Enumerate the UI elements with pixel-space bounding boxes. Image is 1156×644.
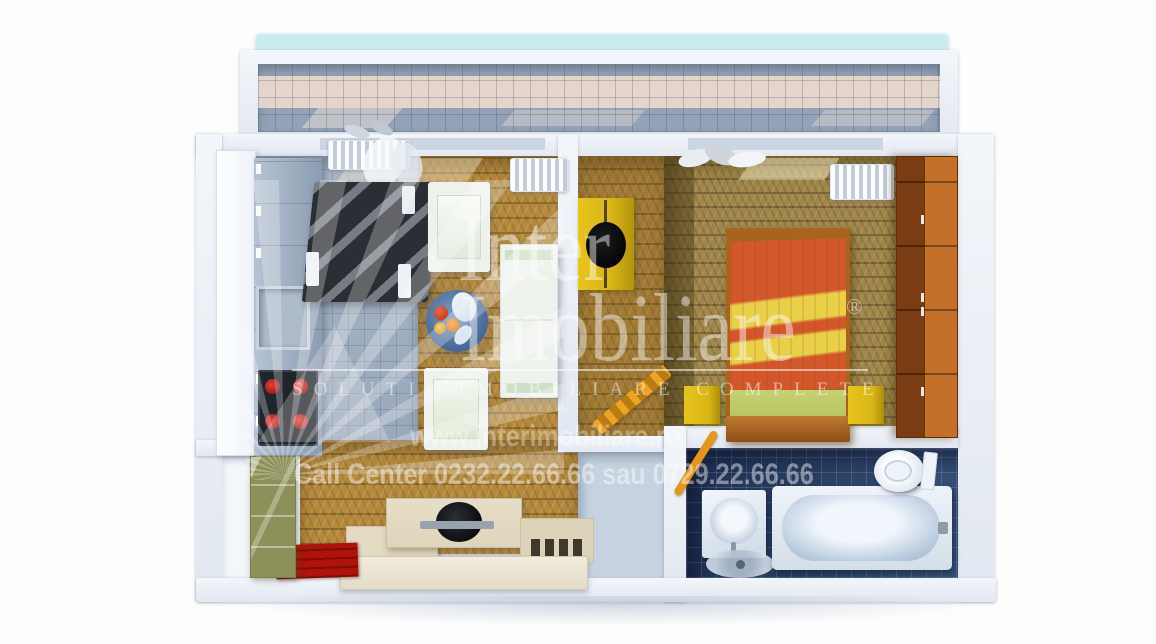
bath-sink <box>702 490 766 558</box>
watermark-brand-imobiliare: Imobiliare <box>460 280 796 376</box>
floor-drain-center <box>736 560 745 569</box>
wardrobe-handle <box>921 387 924 396</box>
balcony-tile-grid <box>258 64 940 132</box>
plan-ground-shadow <box>240 596 980 626</box>
bathtub-basin <box>782 495 940 561</box>
bath-sink-bowl <box>710 498 758 544</box>
bedroom-radiator <box>830 164 894 200</box>
watermark-divider <box>292 369 868 371</box>
floor-drain <box>706 550 774 578</box>
wall-right <box>958 134 994 600</box>
bathtub-tap <box>938 522 948 534</box>
bed-footboard <box>726 416 850 442</box>
bathtub <box>772 486 952 570</box>
wardrobe-handle <box>921 215 924 224</box>
tv-unit-skirt <box>340 556 588 590</box>
wardrobe <box>896 156 958 438</box>
toilet-bowl <box>874 450 924 492</box>
floorplan-render: Inter Imobiliare ® SOLUTII IMOBILIARE CO… <box>0 0 1156 644</box>
watermark-registered-icon: ® <box>846 296 863 318</box>
balcony-floor <box>258 64 940 132</box>
watermark-website: www.interimobiliare.ro <box>410 420 681 454</box>
watermark-call-center: Call Center 0232.22.66.66 sau 0729.22.66… <box>294 458 814 492</box>
watermark-tagline: SOLUTII IMOBILIARE COMPLETE <box>292 380 885 399</box>
wardrobe-handle <box>921 307 924 316</box>
wardrobe-handle <box>921 293 924 302</box>
wardrobe-seams <box>897 157 957 437</box>
tv-stand-bar <box>420 521 494 529</box>
toilet-seat <box>884 460 912 482</box>
